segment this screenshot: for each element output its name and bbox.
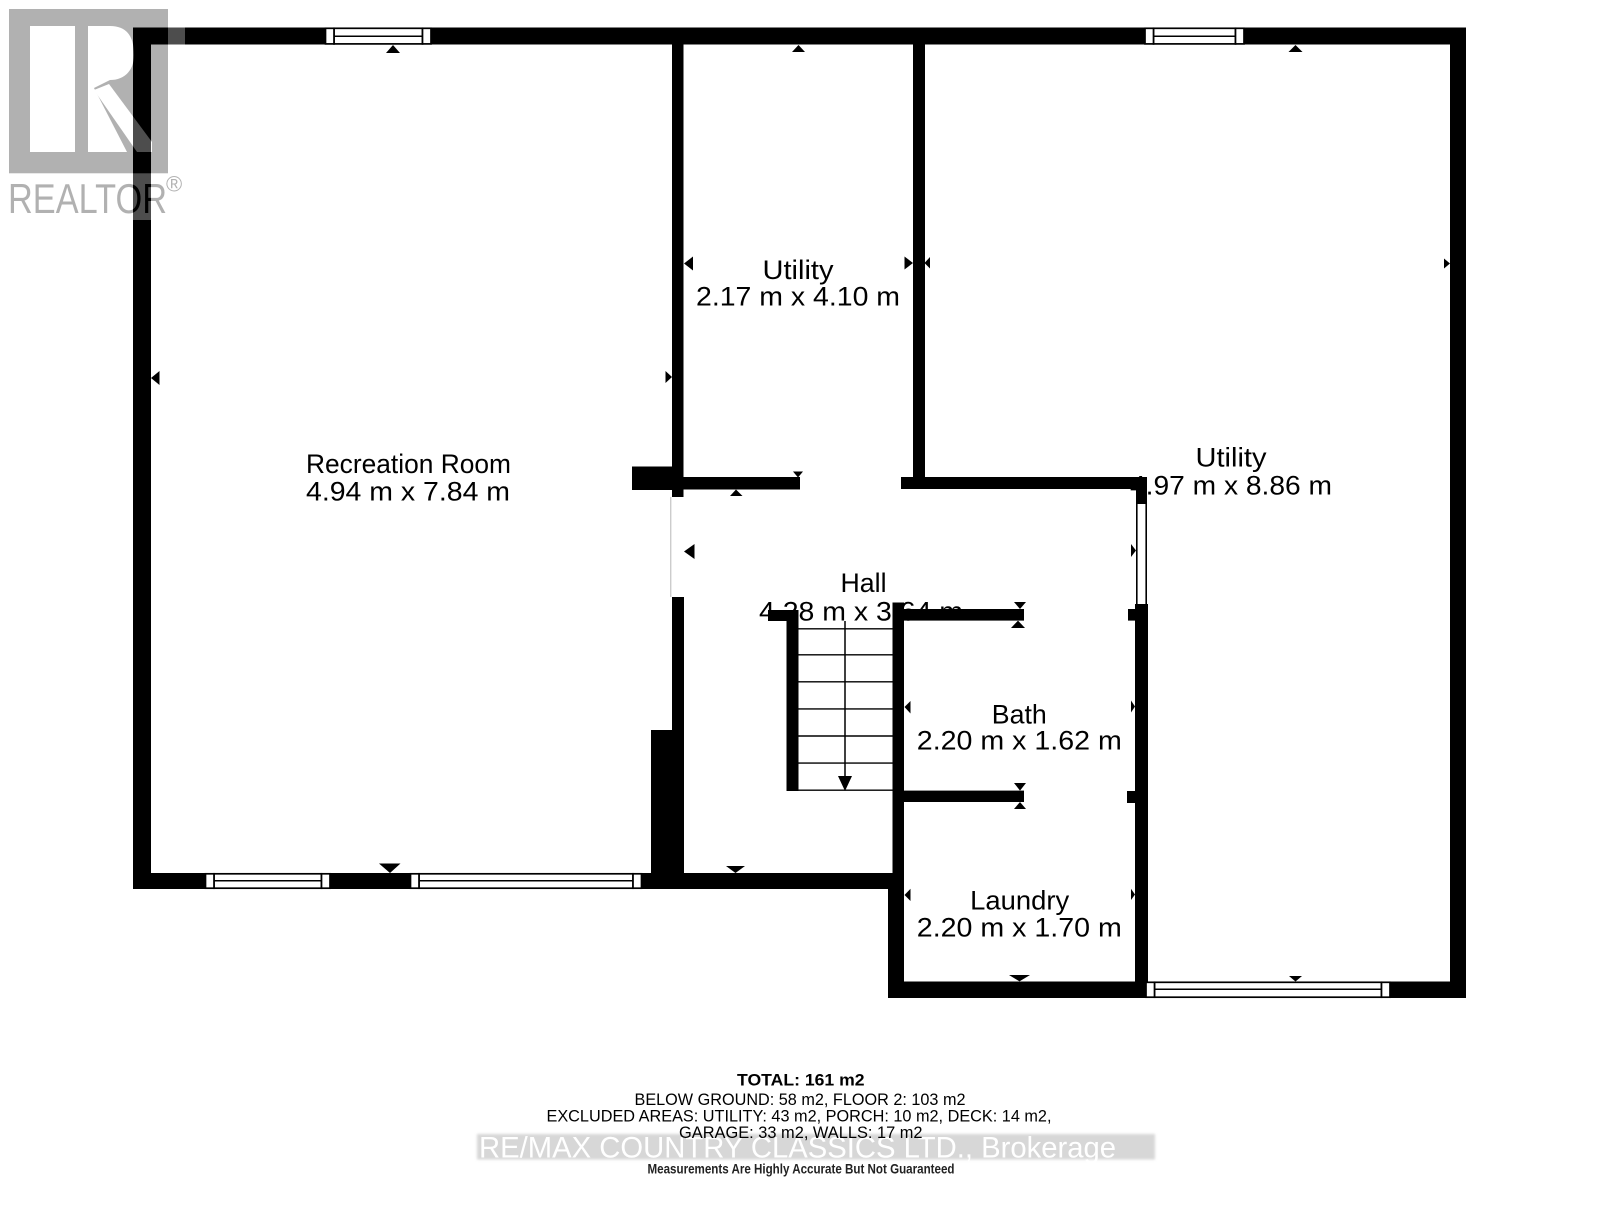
svg-text:Utility: Utility (1196, 442, 1268, 472)
svg-text:2.20 m x 1.62 m: 2.20 m x 1.62 m (917, 726, 1122, 756)
svg-text:4.94 m x 7.84 m: 4.94 m x 7.84 m (306, 476, 510, 506)
svg-text:Hall: Hall (841, 568, 887, 598)
svg-text:2.17 m x 4.10 m: 2.17 m x 4.10 m (696, 281, 900, 311)
svg-text:Recreation Room: Recreation Room (306, 449, 511, 479)
svg-text:REALTOR: REALTOR (8, 175, 167, 222)
svg-text:TOTAL: 161 m2: TOTAL: 161 m2 (737, 1072, 865, 1090)
svg-text:Laundry: Laundry (970, 885, 1070, 915)
svg-text:Measurements Are Highly Accura: Measurements Are Highly Accurate But Not… (648, 1162, 955, 1177)
svg-text:4.97 m x 8.86 m: 4.97 m x 8.86 m (1130, 470, 1332, 500)
svg-text:2.20 m x 1.70 m: 2.20 m x 1.70 m (917, 912, 1122, 942)
svg-text:®: ® (166, 172, 182, 197)
svg-text:BELOW GROUND: 58 m2, FLOOR 2:: BELOW GROUND: 58 m2, FLOOR 2: 103 m2 (635, 1091, 966, 1109)
svg-text:EXCLUDED AREAS: UTILITY: 43 m2: EXCLUDED AREAS: UTILITY: 43 m2, PORCH: 1… (547, 1107, 1052, 1125)
svg-text:GARAGE: 33 m2, WALLS: 17 m2: GARAGE: 33 m2, WALLS: 17 m2 (679, 1124, 923, 1142)
